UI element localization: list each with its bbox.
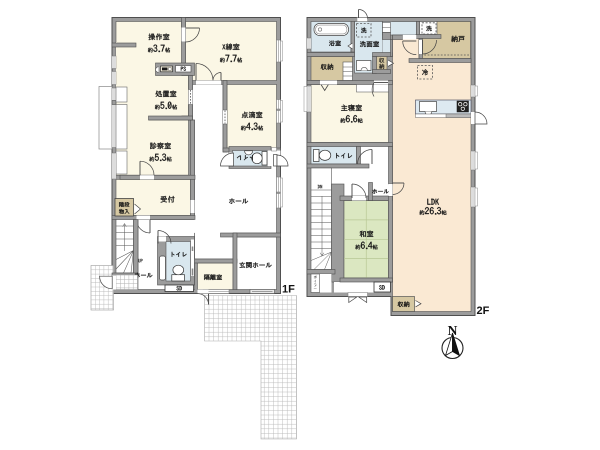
svg-text:N: N [448,323,458,338]
svg-text:1F: 1F [282,283,295,295]
svg-text:2F: 2F [477,305,490,317]
